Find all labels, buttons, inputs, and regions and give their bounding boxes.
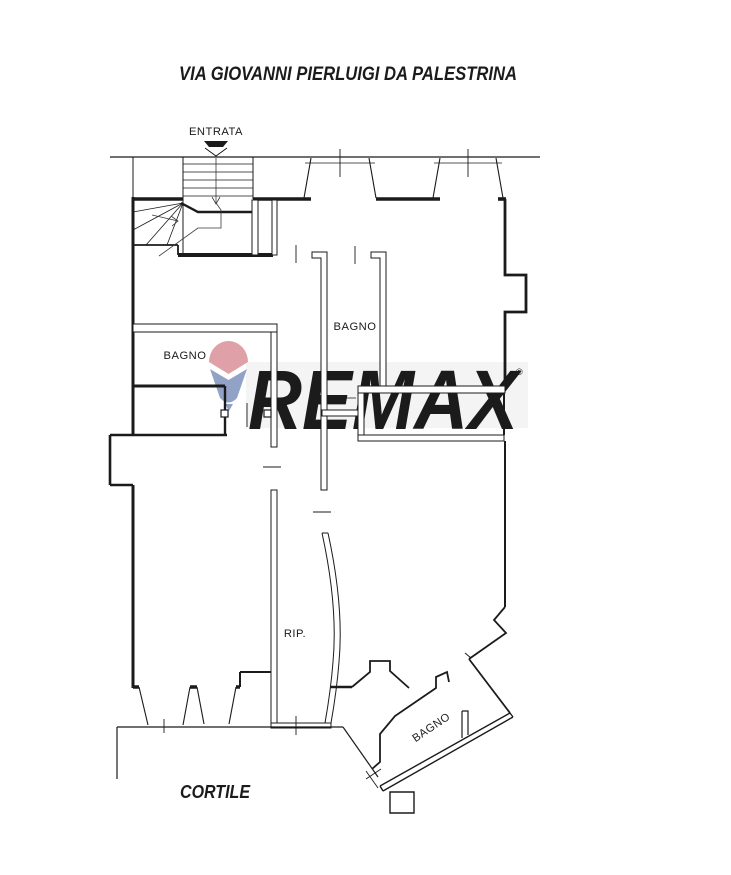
door-symbols — [221, 245, 356, 735]
courtyard-boundary — [117, 727, 414, 813]
remax-balloon-top-icon — [209, 341, 248, 374]
watermark: REMAX ® — [209, 341, 528, 447]
watermark-registered-mark: ® — [516, 367, 523, 377]
floor-plan-page: REMAX ® — [0, 0, 731, 875]
curved-wall — [322, 533, 340, 723]
bathroom-left-label: BAGNO — [164, 350, 207, 362]
plan-linework — [110, 141, 540, 813]
staircase — [133, 157, 253, 256]
street-title: VIA GIOVANNI PIERLUIGI DA PALESTRINA — [179, 63, 517, 85]
partition-walls — [133, 200, 505, 728]
angled-wing — [352, 607, 513, 791]
floor-plan-canvas: REMAX ® — [0, 0, 731, 875]
entrance-label: ENTRATA — [189, 126, 243, 138]
courtyard-label: CORTILE — [180, 782, 251, 802]
windows-top — [304, 149, 503, 198]
entrance-door-icon — [204, 141, 228, 147]
bathroom-center-label: BAGNO — [334, 321, 377, 333]
storage-label: RIP. — [284, 628, 306, 640]
street-and-entrance — [110, 141, 540, 197]
windows-bottom — [139, 687, 236, 733]
bathroom-corner-label: BAGNO — [410, 711, 452, 745]
